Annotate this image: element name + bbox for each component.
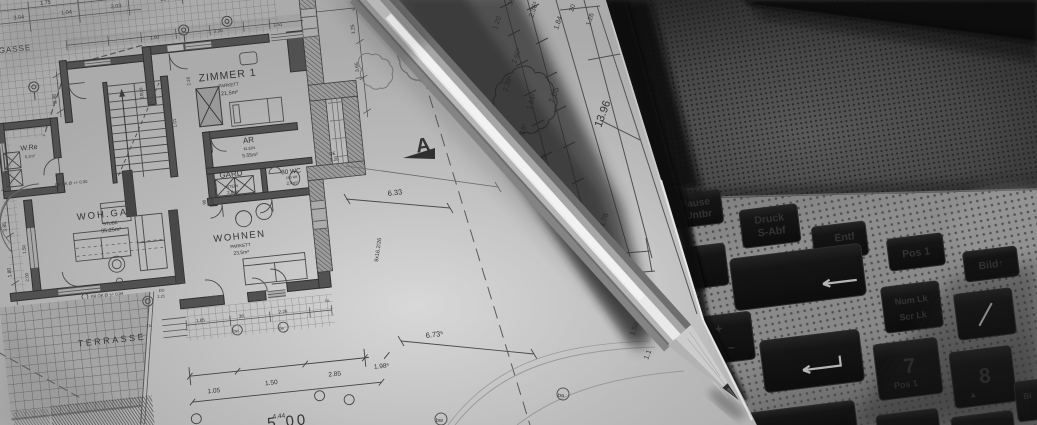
svg-text:2.21: 2.21	[157, 293, 166, 299]
svg-text:DU: DU	[158, 287, 164, 293]
svg-text:1.80: 1.80	[7, 267, 14, 278]
svg-text:2.20: 2.20	[214, 28, 224, 34]
svg-text:DE: DE	[329, 151, 336, 157]
svg-text:2.85: 2.85	[328, 370, 342, 378]
svg-text:TA: TA	[146, 323, 152, 329]
svg-text:1.50: 1.50	[265, 379, 279, 387]
svg-text:1.51: 1.51	[273, 22, 283, 28]
svg-text:ba: ba	[558, 393, 565, 399]
svg-text:2.00: 2.00	[24, 272, 30, 282]
svg-text:6.33: 6.33	[387, 187, 403, 198]
svg-text:1.50: 1.50	[21, 244, 27, 254]
svg-text:Entf: Entf	[834, 230, 856, 244]
svg-text:2.26: 2.26	[278, 309, 288, 315]
svg-text:1.00: 1.00	[150, 35, 160, 41]
svg-text:3.85: 3.85	[2, 221, 9, 232]
svg-text:1.01: 1.01	[172, 118, 178, 128]
svg-text:AR: AR	[242, 135, 254, 145]
svg-text:1.85: 1.85	[196, 317, 206, 323]
svg-text:2.38: 2.38	[52, 94, 59, 105]
svg-text:2.26: 2.26	[186, 76, 192, 86]
svg-text:1.05: 1.05	[207, 387, 221, 395]
svg-text:bw: bw	[436, 418, 443, 424]
svg-text:2.20: 2.20	[330, 156, 340, 162]
